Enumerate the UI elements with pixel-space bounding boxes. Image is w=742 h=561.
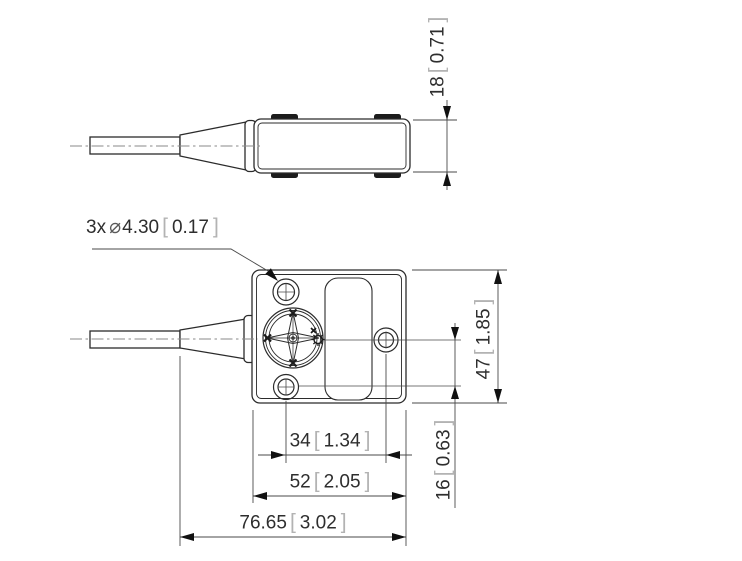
side-dimension-lines: [413, 100, 457, 190]
label-slot: [325, 278, 372, 400]
side-body-inner-line: [258, 123, 406, 169]
dim-offset-16-label: 16[0.63]: [433, 420, 454, 501]
hole-count: 3x: [86, 217, 106, 238]
drawing-canvas: [0, 0, 742, 561]
hole-diameter-mm: 4.30: [122, 217, 159, 238]
hole-diameter-inch: 0.17: [172, 217, 209, 238]
dim-length-76-65-label: 76.65[3.02]: [239, 512, 346, 533]
dim-spacing-34-label: 34[1.34]: [290, 430, 371, 451]
diameter-symbol: ⌀: [109, 216, 121, 238]
dim-height-18-label: 18[0.71]: [427, 17, 448, 98]
dim-width-52-label: 52[2.05]: [290, 471, 371, 492]
front-view: [90, 270, 406, 403]
technical-drawing: 3x⌀4.30[0.17] 18[0.71] 47[1.85] 16[0.63]…: [0, 0, 742, 561]
hole-diameter-note: 3x⌀4.30[0.17]: [86, 216, 219, 237]
dim-height-47-label: 47[1.85]: [473, 299, 494, 380]
hole-note-leader: [92, 249, 278, 281]
